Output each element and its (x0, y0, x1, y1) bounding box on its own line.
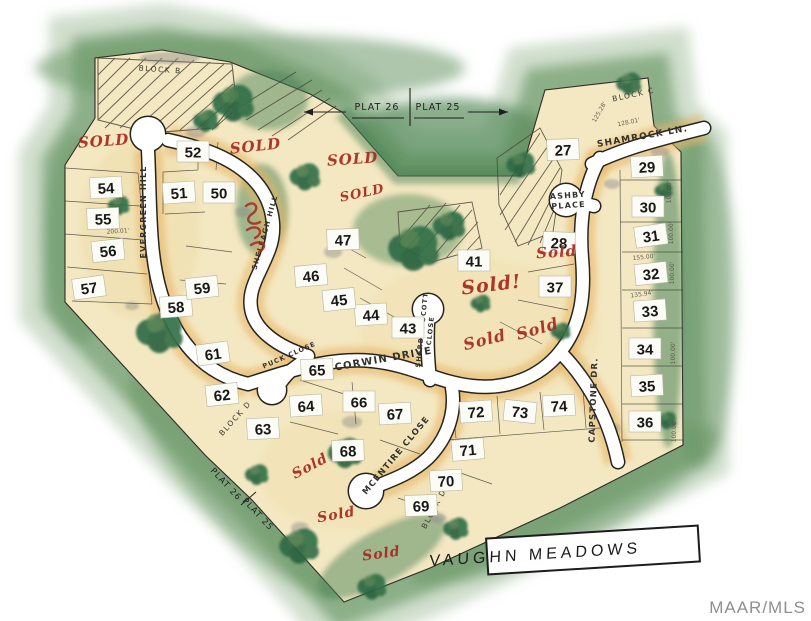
lot-label-68: 68 (332, 439, 365, 461)
svg-text:46: 46 (302, 268, 320, 286)
dimension-label-2: 100.00' (669, 261, 676, 284)
lot-label-61: 61 (196, 341, 231, 366)
plat-26-label-top: PLAT 26 (355, 102, 400, 113)
lot-label-50: 50 (203, 182, 235, 203)
lot-label-63: 63 (246, 417, 279, 440)
svg-text:36: 36 (637, 415, 654, 432)
svg-text:68: 68 (339, 443, 356, 461)
svg-text:47: 47 (334, 232, 351, 250)
lot-label-27: 27 (547, 138, 580, 160)
lot-label-33: 33 (633, 299, 666, 322)
svg-text:50: 50 (211, 186, 228, 203)
svg-text:44: 44 (362, 307, 380, 325)
svg-text:57: 57 (80, 279, 99, 298)
lot-label-47: 47 (327, 228, 360, 250)
svg-text:52: 52 (185, 145, 202, 162)
svg-text:67: 67 (386, 406, 404, 424)
mls-watermark: MAAR/MLS (709, 598, 806, 617)
svg-text:69: 69 (412, 498, 429, 516)
svg-text:72: 72 (467, 404, 485, 422)
svg-text:58: 58 (167, 299, 185, 317)
sold-annotation-5: Sold (536, 242, 578, 263)
svg-text:56: 56 (99, 243, 117, 262)
lot-label-32: 32 (634, 261, 668, 285)
lot-label-59: 59 (185, 275, 219, 299)
lot-label-44: 44 (354, 303, 387, 326)
lot-label-64: 64 (289, 394, 322, 417)
svg-text:70: 70 (437, 473, 455, 491)
svg-text:73: 73 (511, 404, 529, 423)
svg-text:74: 74 (550, 398, 568, 416)
svg-text:66: 66 (351, 395, 368, 412)
street-name-evergreen-hill: EVERGREEN HILL (139, 165, 148, 258)
svg-text:63: 63 (254, 421, 272, 439)
lot-label-36: 36 (629, 411, 661, 432)
lot-label-57: 57 (72, 275, 107, 300)
svg-text:34: 34 (637, 342, 654, 359)
svg-text:59: 59 (193, 280, 211, 299)
lot-label-35: 35 (630, 374, 663, 397)
street-name-ashby-place: ASHBYPLACE (550, 190, 587, 211)
lot-label-41: 41 (458, 250, 490, 271)
svg-text:33: 33 (641, 303, 659, 321)
lot-label-73: 73 (503, 399, 537, 423)
lot-label-70: 70 (429, 469, 462, 492)
svg-text:31: 31 (642, 227, 661, 246)
svg-text:45: 45 (330, 292, 348, 311)
lot-label-45: 45 (322, 287, 356, 311)
dimension-label-3: 100.00' (670, 341, 677, 364)
lot-label-54: 54 (89, 176, 122, 199)
svg-text:55: 55 (94, 211, 111, 229)
lot-label-55: 55 (87, 207, 120, 229)
lot-label-56: 56 (91, 238, 125, 262)
plat-25-label-top: PLAT 25 (416, 102, 461, 113)
lot-label-74: 74 (542, 394, 575, 417)
svg-text:51: 51 (170, 185, 188, 203)
lot-label-72: 72 (459, 400, 492, 423)
svg-text:32: 32 (642, 266, 660, 285)
lot-label-52: 52 (177, 141, 209, 162)
svg-text:64: 64 (297, 398, 315, 416)
svg-text:27: 27 (554, 142, 571, 160)
vaughn-meadows-plat-map: 100.00'100.00'100.00'100.00'100.00'155.0… (0, 0, 811, 621)
svg-text:37: 37 (547, 280, 564, 297)
sold-annotation-0: SOLD (77, 130, 130, 152)
lot-label-65: 65 (301, 358, 334, 380)
lot-label-31: 31 (634, 223, 669, 248)
lot-label-69: 69 (405, 494, 438, 516)
lot-label-71: 71 (451, 438, 485, 462)
svg-text:29: 29 (638, 159, 656, 177)
lot-label-43: 43 (392, 317, 424, 338)
lot-label-29: 29 (630, 155, 663, 178)
lot-label-30: 30 (632, 196, 664, 217)
sold-annotation-2: SOLD (326, 148, 379, 170)
svg-text:61: 61 (204, 345, 223, 364)
svg-text:62: 62 (213, 387, 231, 406)
svg-text:30: 30 (640, 200, 657, 217)
lot-label-51: 51 (162, 181, 195, 204)
svg-text:71: 71 (459, 442, 477, 460)
svg-text:35: 35 (638, 378, 656, 396)
lot-label-37: 37 (539, 276, 571, 297)
lot-label-46: 46 (294, 264, 328, 288)
lot-label-67: 67 (378, 402, 411, 425)
lot-label-34: 34 (629, 338, 661, 359)
dimension-label-1: 100.00' (668, 221, 675, 244)
svg-text:41: 41 (466, 254, 483, 271)
lot-label-66: 66 (343, 391, 375, 412)
svg-text:43: 43 (400, 321, 417, 338)
dimension-label-0: 100.00' (666, 180, 673, 203)
lot-label-62: 62 (205, 382, 239, 406)
svg-text:54: 54 (97, 180, 115, 198)
plat-map-scan: 100.00'100.00'100.00'100.00'100.00'155.0… (0, 0, 811, 621)
svg-text:65: 65 (308, 362, 325, 380)
dimension-label-4: 100.00' (671, 419, 678, 442)
